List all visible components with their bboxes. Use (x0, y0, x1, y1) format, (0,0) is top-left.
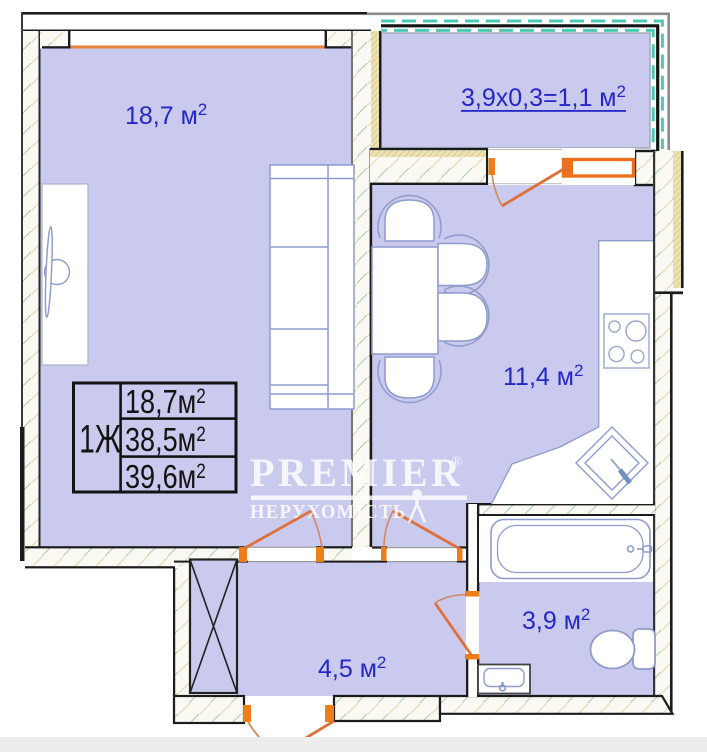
svg-text:39,6м2: 39,6м2 (125, 460, 206, 496)
svg-text:1Ж: 1Ж (79, 418, 121, 462)
svg-text:3,9 м2: 3,9 м2 (522, 605, 590, 635)
svg-text:11,4 м2: 11,4 м2 (503, 361, 583, 391)
svg-text:НЕРУХОМІСТЬ: НЕРУХОМІСТЬ (250, 501, 407, 523)
svg-text:38,5м2: 38,5м2 (125, 423, 206, 459)
svg-text:PREMIER: PREMIER (250, 450, 463, 495)
svg-text:4,5 м2: 4,5 м2 (318, 653, 386, 683)
svg-text:18,7м2: 18,7м2 (125, 385, 206, 421)
svg-text:18,7 м2: 18,7 м2 (125, 100, 207, 130)
svg-text:®: ® (451, 454, 462, 470)
svg-text:3,9x0,3=1,1 м2: 3,9x0,3=1,1 м2 (461, 82, 626, 112)
